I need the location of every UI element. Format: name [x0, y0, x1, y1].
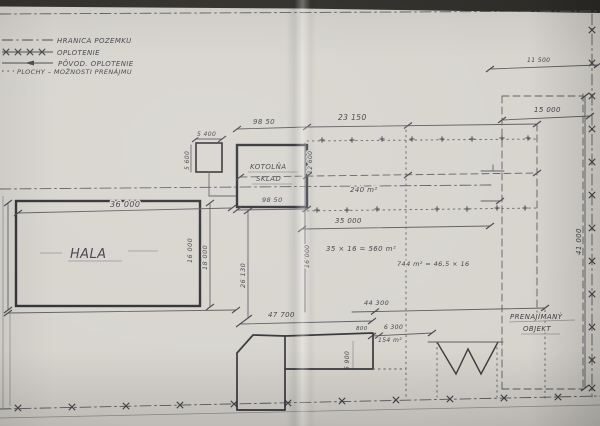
- dim-annex-width: 5 400: [197, 131, 216, 138]
- dim-annex-depth: 5 600: [184, 151, 191, 170]
- hala-building: HALA 36 000 16 000 18 000: [4, 200, 240, 406]
- building-label-kotolna-1: KOTOLŇA: [250, 162, 286, 171]
- fence-marks-bottom: [15, 394, 561, 411]
- dim-hala-depth-inner: 16 000: [186, 238, 194, 263]
- area-plus-marks-mid: [314, 205, 527, 212]
- dim-hala-depth-outer: 18 000: [201, 245, 209, 270]
- building-label-hala: HALA: [70, 247, 106, 262]
- kotolna-block: 5 400 5 600 KOTOLŇA SKLAD 98 50 98 50 12…: [184, 113, 541, 312]
- site-plan-photo: HRANICA POZEMKU OPLOTENIE PÔVOD. OPLOTEN…: [0, 0, 600, 426]
- dim-kotolna-depth: 12 600: [307, 151, 314, 174]
- dim-line-rented-width: [502, 116, 590, 120]
- dim-yard-depth: 26 130: [239, 263, 247, 288]
- dim-right-outer: 11 500: [527, 57, 550, 64]
- area-plus-marks-top: [319, 135, 530, 142]
- dim-kotolna-width-bottom: 98 50: [262, 196, 283, 204]
- rental-line-upper: [240, 173, 537, 177]
- legend-label-areas: PLOCHY – MOŽNOSTI PRENÁJMU: [17, 67, 132, 76]
- dim-rented-depth: 41 000: [575, 228, 583, 255]
- dim-rental-depth: 16 000: [304, 245, 311, 268]
- ramp-zigzag-icon: [437, 342, 498, 374]
- south-building-outline: [237, 335, 285, 410]
- dim-line-kotolna-top: [237, 127, 307, 129]
- orig-fence-stubs: [481, 165, 504, 201]
- dim-south-right: 44 300: [364, 299, 389, 307]
- building-label-rented-2: OBJEKT: [523, 325, 551, 333]
- dim-rental-width: 35 000: [335, 217, 362, 225]
- boundary-line-top: [0, 11, 600, 14]
- annex-outline: [196, 143, 222, 172]
- rented-object: 11 500 15 000 41 000 PRENAJÍMANÝ OBJEKT: [481, 57, 600, 391]
- dim-line-site-width: [307, 124, 537, 127]
- dim-line-rental-width: [302, 226, 490, 229]
- area-label-154: 154 m²: [378, 337, 402, 344]
- legend-label-orig-fence: PÔVOD. OPLOTENIE: [58, 59, 134, 68]
- legend-arrowhead-icon: [25, 61, 34, 66]
- dim-south-left: 47 700: [268, 311, 295, 319]
- dim-gate-wide: 6 300: [384, 324, 403, 331]
- dim-line-south-left: [240, 321, 372, 324]
- dim-gate-small: 800: [356, 326, 368, 332]
- building-label-rented-1: PRENAJÍMANÝ: [510, 312, 563, 321]
- dim-ramp-depth: 5 900: [344, 351, 351, 370]
- area-label-744: 744 m² = 46,5 × 16: [397, 260, 470, 268]
- area-label-560: 35 × 16 = 560 m²: [326, 245, 396, 253]
- hala-outline: [16, 201, 200, 306]
- dim-line-south-right: [352, 308, 545, 312]
- dim-line-below-hala: [8, 310, 236, 313]
- dim-site-width: 23 150: [338, 113, 367, 122]
- south-platform-outline: [285, 333, 373, 369]
- boundary-line-middle: [0, 185, 492, 189]
- dim-rented-width: 15 000: [534, 106, 561, 114]
- dim-line-kotolna-bottom: [237, 209, 307, 210]
- annex-connector-line: [209, 172, 237, 196]
- dim-kotolna-width-top: 98 50: [253, 118, 275, 126]
- dim-hala-width: 36 000: [110, 200, 140, 209]
- area-label-240: 240 m²: [350, 186, 378, 194]
- legend: HRANICA POZEMKU OPLOTENIE PÔVOD. OPLOTEN…: [2, 37, 134, 76]
- legend-label-fence: OPLOTENIE: [57, 49, 100, 57]
- rented-object-outline: [502, 94, 583, 389]
- dim-line-right-outer: [490, 65, 598, 69]
- legend-label-boundary: HRANICA POZEMKU: [57, 37, 132, 45]
